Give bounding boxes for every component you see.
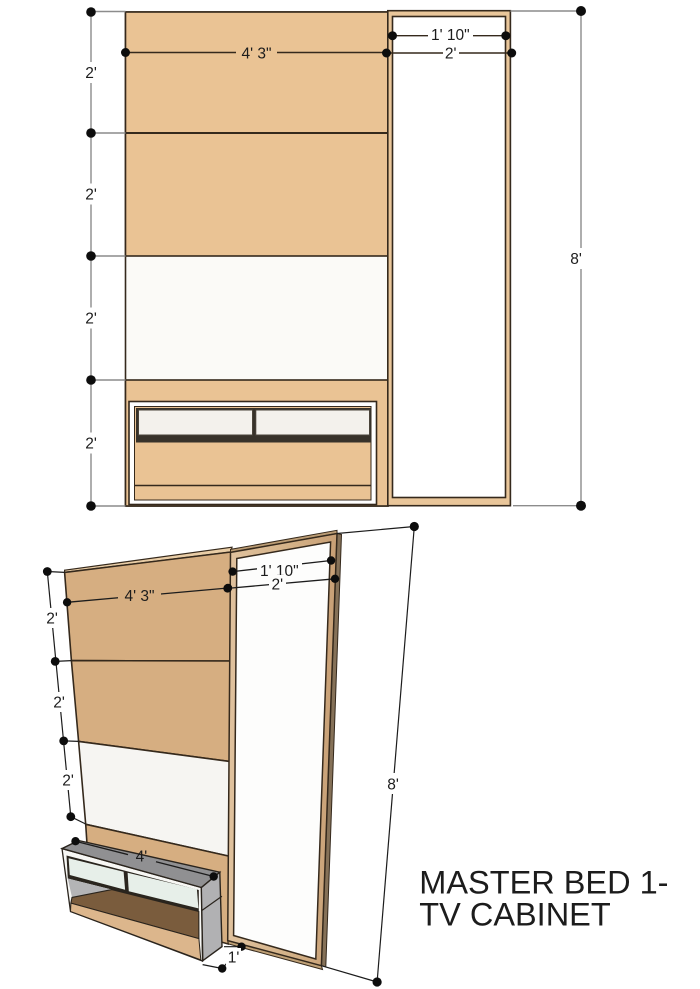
svg-text:2': 2' [85, 311, 97, 328]
svg-text:2': 2' [445, 46, 457, 63]
svg-text:1': 1' [228, 950, 240, 967]
svg-text:4': 4' [136, 849, 148, 866]
svg-text:4' 3": 4' 3" [124, 588, 154, 605]
svg-text:1' 10": 1' 10" [431, 27, 470, 44]
svg-text:2': 2' [85, 187, 97, 204]
svg-text:2': 2' [53, 695, 65, 712]
svg-text:8': 8' [570, 251, 582, 268]
svg-text:4' 3": 4' 3" [241, 46, 271, 63]
svg-text:2': 2' [85, 436, 97, 453]
svg-text:MASTER BED 1-: MASTER BED 1- [419, 864, 668, 900]
svg-text:2': 2' [46, 611, 58, 628]
svg-text:TV CABINET: TV CABINET [419, 897, 611, 933]
svg-text:8': 8' [387, 777, 399, 794]
svg-text:2': 2' [62, 773, 74, 790]
svg-text:2': 2' [85, 65, 97, 82]
svg-text:2': 2' [272, 577, 284, 594]
